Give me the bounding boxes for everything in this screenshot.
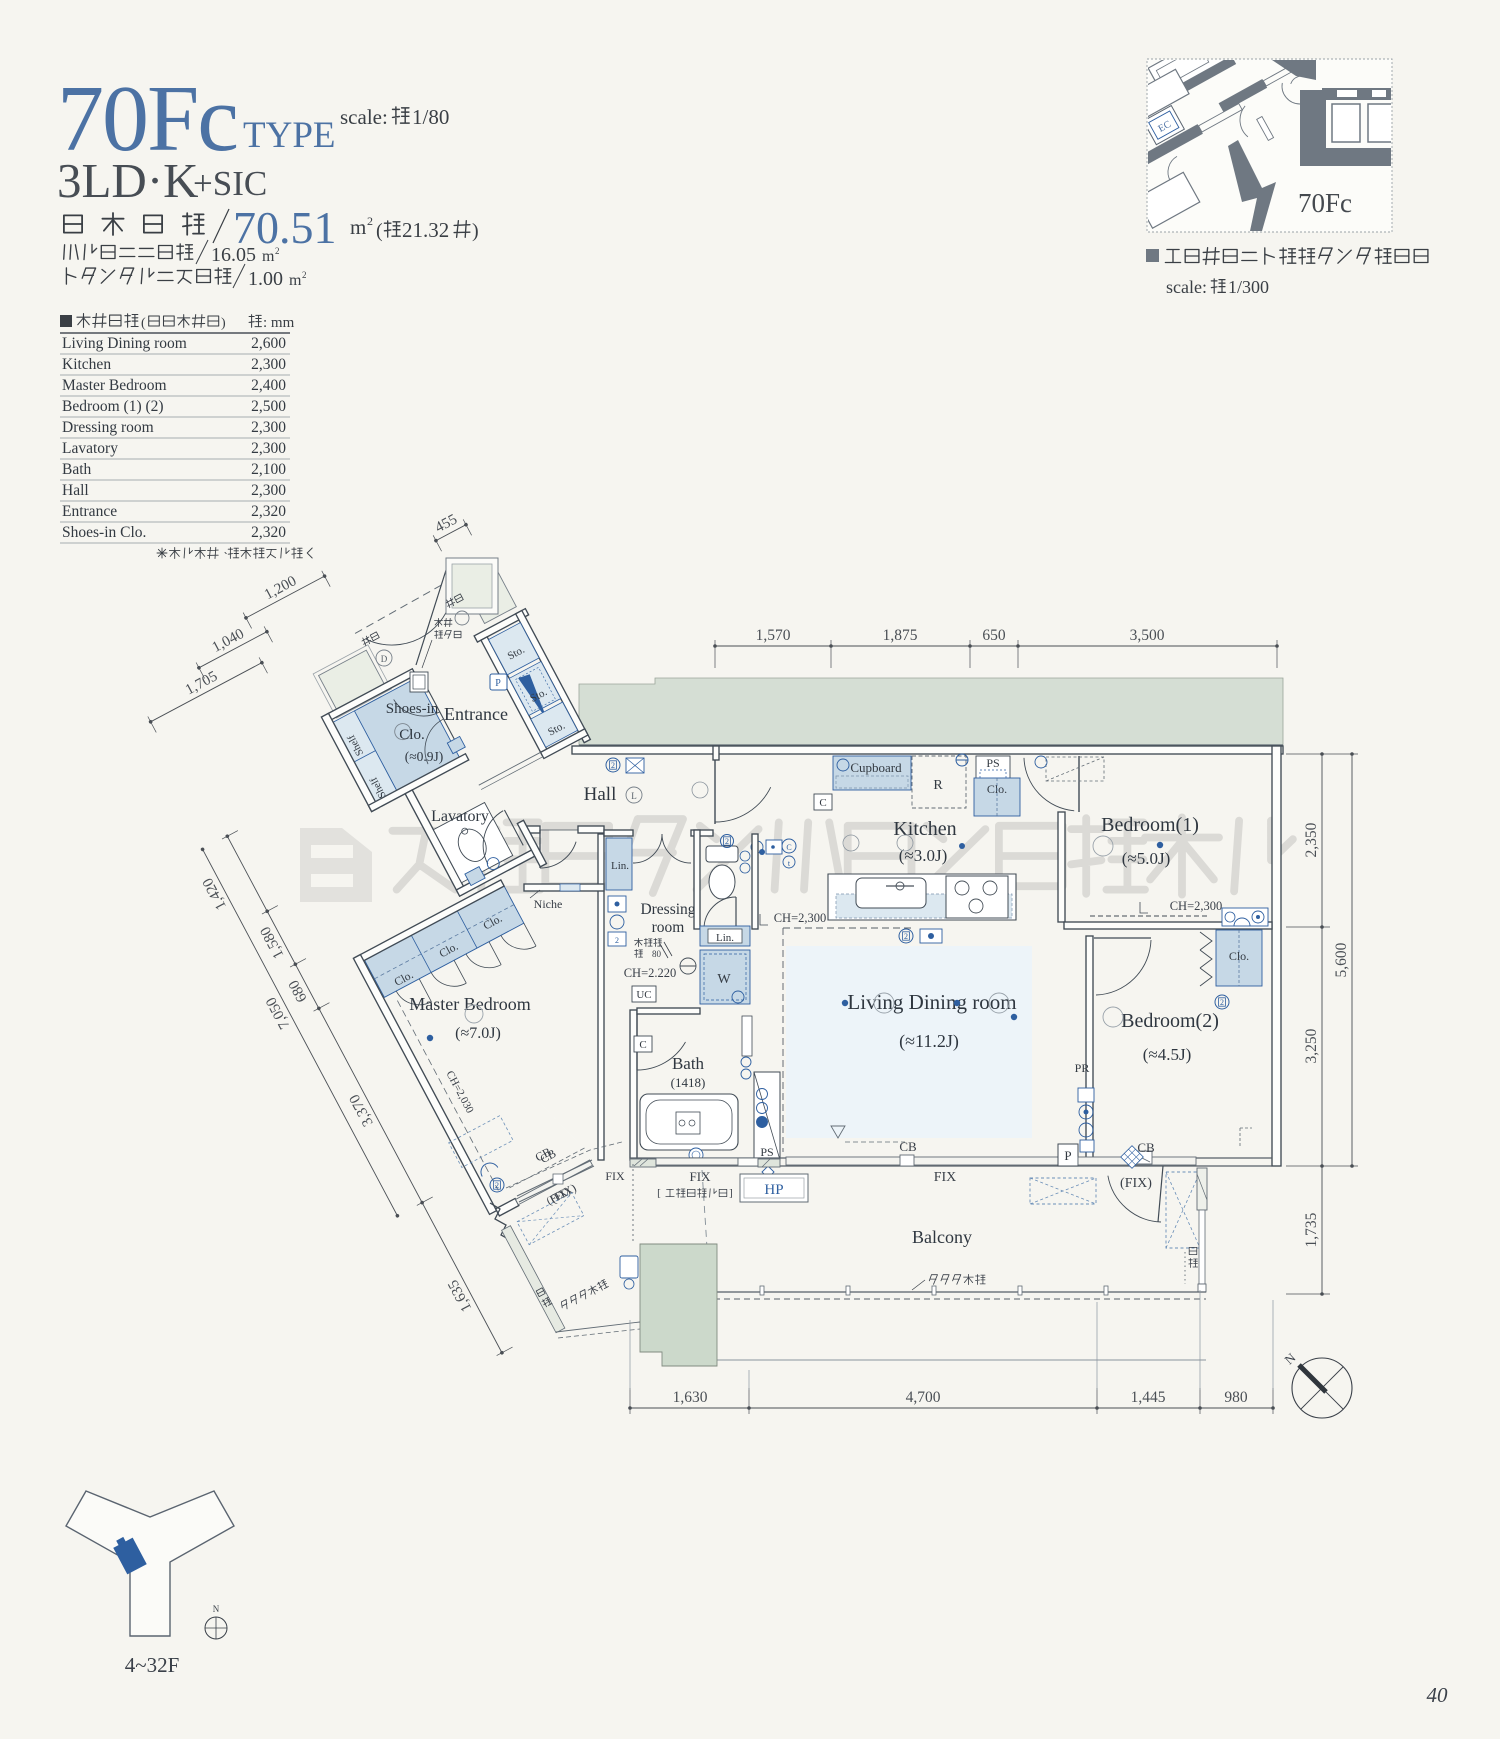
svg-text:C: C — [819, 797, 826, 809]
svg-text:L: L — [631, 791, 637, 801]
svg-text:2,400: 2,400 — [251, 377, 286, 394]
svg-text:FIX: FIX — [934, 1170, 957, 1185]
svg-text:4~32F: 4~32F — [125, 1653, 180, 1677]
svg-text:(≈0.9J): (≈0.9J) — [405, 749, 444, 764]
svg-text:2: 2 — [367, 214, 373, 228]
svg-text:16.05: 16.05 — [211, 244, 256, 266]
svg-text:C: C — [786, 843, 791, 852]
svg-text:N: N — [213, 1604, 220, 1614]
svg-text:1,630: 1,630 — [673, 1389, 708, 1406]
svg-text:Bath: Bath — [62, 461, 92, 478]
svg-text:W: W — [717, 972, 731, 987]
svg-text:Bedroom(2): Bedroom(2) — [1121, 1010, 1219, 1032]
svg-text:Kitchen: Kitchen — [62, 356, 111, 373]
svg-text:2,500: 2,500 — [251, 398, 286, 415]
svg-text:2,320: 2,320 — [251, 503, 286, 520]
svg-text:Bath: Bath — [672, 1054, 705, 1073]
svg-text:Niche: Niche — [534, 897, 563, 911]
svg-text:R: R — [933, 778, 943, 793]
svg-text:(: ( — [141, 316, 146, 331]
svg-text:Lin.: Lin. — [716, 932, 734, 944]
svg-text:Shoes-in Clo.: Shoes-in Clo. — [62, 524, 146, 541]
svg-text:Bedroom(1): Bedroom(1) — [1101, 814, 1199, 836]
svg-text:Lavatory: Lavatory — [431, 808, 489, 825]
svg-text:21.32: 21.32 — [402, 218, 449, 242]
svg-text:2: 2 — [495, 1181, 499, 1190]
svg-text:2: 2 — [904, 932, 908, 941]
svg-text:1,420: 1,420 — [200, 875, 230, 912]
svg-text:1,580: 1,580 — [257, 924, 287, 961]
svg-text:455: 455 — [433, 511, 460, 536]
svg-text:2: 2 — [615, 936, 619, 945]
svg-text:Master Bedroom: Master Bedroom — [62, 377, 167, 394]
svg-text:m: m — [350, 215, 366, 239]
svg-text:Living Dining room: Living Dining room — [62, 335, 187, 352]
svg-text:Balcony: Balcony — [912, 1227, 972, 1247]
svg-text:scale:: scale: — [340, 105, 388, 129]
svg-text:1/80: 1/80 — [412, 105, 449, 129]
svg-text:7,050: 7,050 — [263, 994, 293, 1031]
svg-text:2: 2 — [1220, 998, 1224, 1007]
svg-text:N: N — [1281, 1350, 1298, 1368]
svg-text:CB: CB — [899, 1139, 917, 1154]
svg-text:(≈3.0J): (≈3.0J) — [899, 846, 948, 865]
svg-text:2,100: 2,100 — [251, 461, 286, 478]
svg-text:Clo.: Clo. — [1229, 949, 1249, 963]
svg-text:1,635: 1,635 — [445, 1277, 475, 1314]
svg-text:3LD·K: 3LD·K — [57, 153, 199, 208]
svg-text:Bedroom (1) (2): Bedroom (1) (2) — [62, 398, 164, 415]
svg-text:C: C — [639, 1039, 646, 1051]
svg-text:2,300: 2,300 — [251, 440, 286, 457]
svg-text:(FIX): (FIX) — [1120, 1176, 1152, 1191]
svg-text:P: P — [495, 678, 501, 689]
svg-text:40: 40 — [1427, 1683, 1449, 1707]
svg-text:Dressing: Dressing — [640, 901, 695, 918]
svg-text:2: 2 — [611, 761, 615, 770]
svg-text:Hall: Hall — [584, 784, 617, 805]
svg-text:): ) — [221, 316, 226, 331]
svg-text:P: P — [1064, 1148, 1071, 1163]
svg-text:3,250: 3,250 — [1303, 1028, 1320, 1063]
svg-text:(≈5.0J): (≈5.0J) — [1122, 849, 1171, 868]
svg-text:Kitchen: Kitchen — [893, 818, 956, 840]
svg-text:[: [ — [657, 1187, 661, 1199]
svg-text:1,875: 1,875 — [883, 627, 918, 644]
svg-text:Clo.: Clo. — [399, 727, 424, 743]
svg-text:1,570: 1,570 — [756, 627, 791, 644]
svg-text:2,300: 2,300 — [251, 482, 286, 499]
svg-text:680: 680 — [286, 977, 311, 1004]
svg-text:4,700: 4,700 — [906, 1389, 941, 1406]
svg-text:PS: PS — [760, 1145, 773, 1159]
svg-text:+SIC: +SIC — [193, 164, 267, 203]
svg-text:t: t — [788, 859, 791, 868]
svg-text:650: 650 — [982, 627, 1006, 644]
svg-text:FIX: FIX — [605, 1169, 625, 1183]
svg-text:PR: PR — [1075, 1061, 1090, 1075]
svg-text:2,350: 2,350 — [1303, 822, 1320, 857]
svg-text:2,300: 2,300 — [251, 356, 286, 373]
svg-text:CH=2,300: CH=2,300 — [1170, 899, 1223, 913]
svg-text:(≈4.5J): (≈4.5J) — [1143, 1045, 1192, 1064]
svg-text:m: m — [262, 248, 275, 265]
svg-text:2,300: 2,300 — [251, 419, 286, 436]
svg-text:(≈11.2J): (≈11.2J) — [899, 1031, 959, 1052]
svg-text:2,600: 2,600 — [251, 335, 286, 352]
svg-text:1,200: 1,200 — [262, 573, 299, 603]
svg-text:Dressing room: Dressing room — [62, 419, 154, 436]
svg-text:D: D — [381, 654, 388, 664]
svg-text:room: room — [652, 919, 685, 936]
svg-text:2: 2 — [725, 837, 729, 846]
svg-text:Master Bedroom: Master Bedroom — [409, 994, 530, 1014]
svg-text:UC: UC — [636, 989, 651, 1001]
svg-text:(: ( — [376, 220, 383, 242]
svg-text:CH=2,030: CH=2,030 — [443, 1069, 476, 1116]
svg-text:2: 2 — [275, 246, 280, 256]
svg-text:): ) — [472, 220, 479, 242]
svg-text:Shoes-in: Shoes-in — [386, 701, 439, 717]
svg-text:980: 980 — [1224, 1389, 1248, 1406]
svg-text:scale:: scale: — [1166, 277, 1207, 297]
svg-text:Cupboard: Cupboard — [850, 760, 902, 775]
svg-text:]: ] — [729, 1187, 733, 1199]
svg-text:70Fc: 70Fc — [1298, 188, 1352, 218]
svg-text:CH=2,300: CH=2,300 — [774, 911, 827, 925]
svg-text:Hall: Hall — [62, 482, 89, 499]
svg-text:1,445: 1,445 — [1131, 1389, 1166, 1406]
svg-text:Lin.: Lin. — [611, 860, 629, 872]
svg-text:1.00: 1.00 — [248, 268, 283, 290]
svg-text:Entrance: Entrance — [444, 704, 508, 724]
svg-text:1,735: 1,735 — [1303, 1212, 1320, 1247]
svg-text:2: 2 — [302, 270, 307, 280]
svg-text:m: m — [289, 272, 302, 289]
svg-text:TYPE: TYPE — [243, 115, 336, 156]
svg-text:1,040: 1,040 — [210, 626, 247, 656]
svg-text:3,500: 3,500 — [1130, 627, 1165, 644]
svg-text:HP: HP — [764, 1182, 783, 1198]
svg-text:: mm: : mm — [263, 315, 295, 331]
svg-text:FIX: FIX — [690, 1169, 712, 1184]
svg-text:CB: CB — [1137, 1140, 1155, 1155]
svg-text:Living Dining room: Living Dining room — [847, 990, 1016, 1014]
svg-text:(≈7.0J): (≈7.0J) — [455, 1025, 501, 1042]
svg-text:PS: PS — [986, 756, 999, 770]
svg-text:Entrance: Entrance — [62, 503, 117, 520]
svg-text:80: 80 — [652, 949, 662, 959]
svg-text:Lavatory: Lavatory — [62, 440, 118, 457]
svg-text:CH=2.220: CH=2.220 — [624, 966, 677, 980]
svg-text:5,600: 5,600 — [1333, 942, 1350, 977]
svg-text:1/300: 1/300 — [1228, 277, 1269, 297]
svg-text:3,370: 3,370 — [347, 1092, 377, 1129]
svg-text:(1418): (1418) — [671, 1075, 706, 1090]
svg-text:2,320: 2,320 — [251, 524, 286, 541]
